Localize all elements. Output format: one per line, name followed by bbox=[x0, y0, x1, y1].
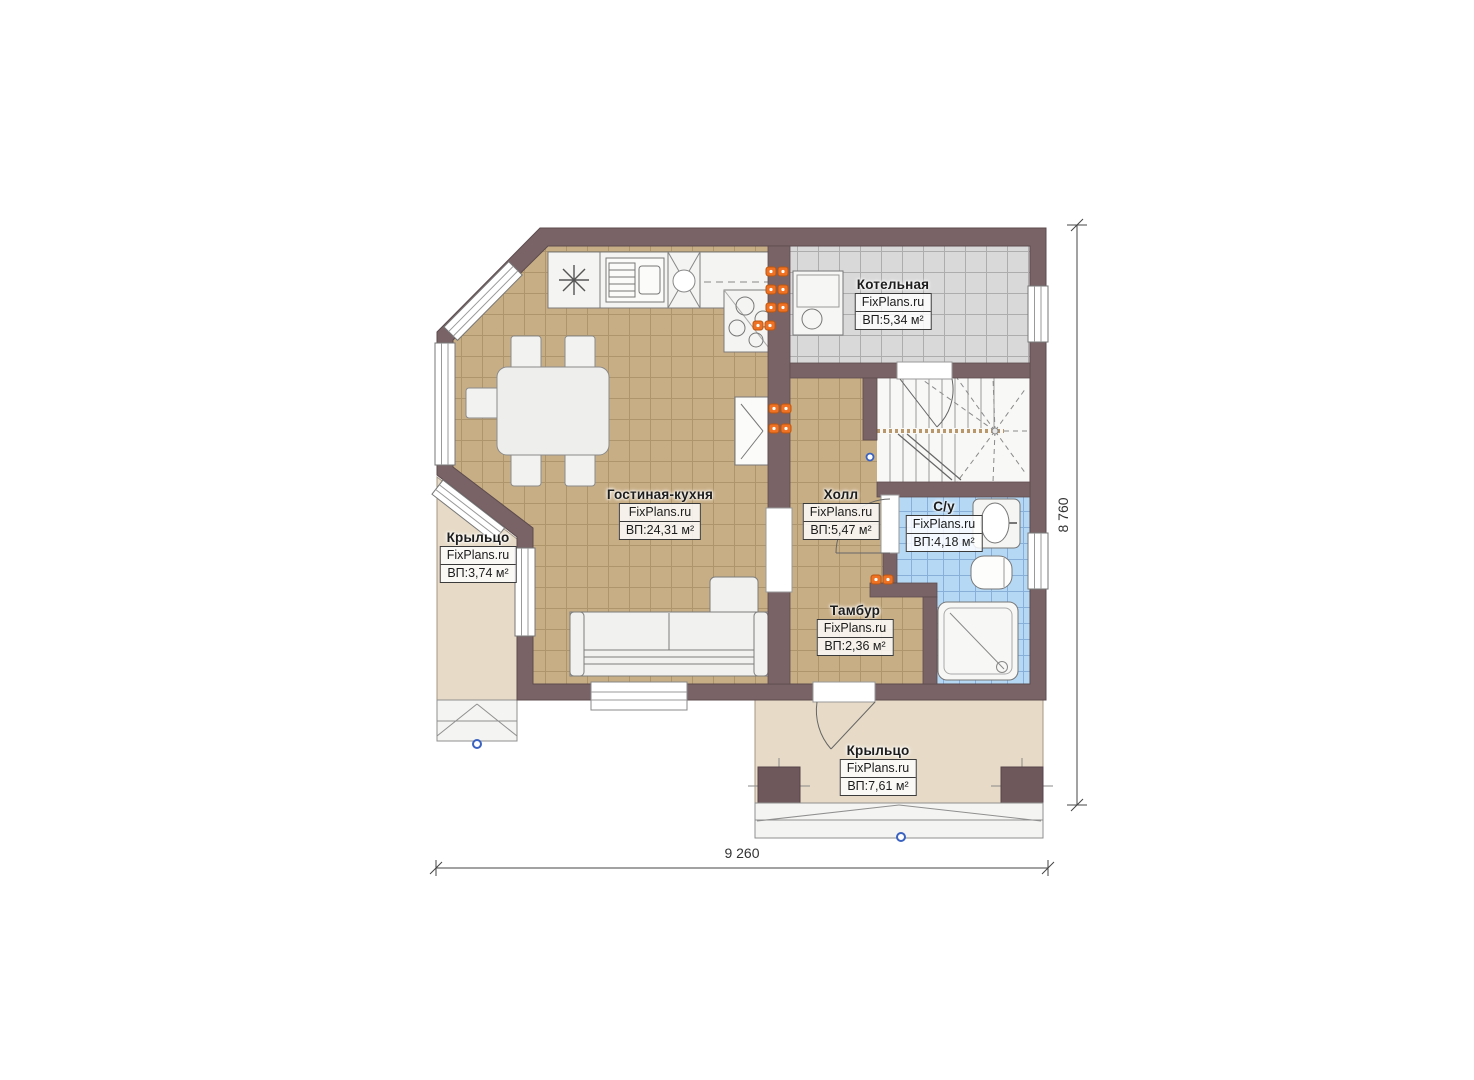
room-plate: FixPlans.ru ВП:4,18 м² bbox=[906, 515, 983, 552]
window-living-south bbox=[591, 682, 687, 710]
room-area: ВП:5,34 м² bbox=[856, 311, 931, 329]
room-label-hall: Холл FixPlans.ru ВП:5,47 м² bbox=[803, 487, 880, 540]
brand-watermark: FixPlans.ru bbox=[441, 547, 516, 564]
room-label-porch-left: Крыльцо FixPlans.ru ВП:3,74 м² bbox=[440, 530, 517, 583]
boiler-unit bbox=[793, 271, 843, 335]
chair bbox=[466, 388, 500, 418]
survey-point-icon bbox=[867, 454, 874, 461]
room-area: ВП:2,36 м² bbox=[818, 637, 893, 655]
room-plate: FixPlans.ru ВП:3,74 м² bbox=[440, 546, 517, 583]
room-area: ВП:5,47 м² bbox=[804, 521, 879, 539]
room-label-vestibule: Тамбур FixPlans.ru ВП:2,36 м² bbox=[817, 603, 894, 656]
dining-table bbox=[497, 367, 609, 455]
room-name: Крыльцо bbox=[440, 530, 517, 545]
chair bbox=[565, 452, 595, 486]
window-left-wall bbox=[515, 548, 535, 636]
room-plate: FixPlans.ru ВП:7,61 м² bbox=[840, 759, 917, 796]
kitchen-sink bbox=[606, 258, 664, 302]
dimension-height-label: 8 760 bbox=[1055, 497, 1071, 532]
room-plate: FixPlans.ru ВП:5,47 м² bbox=[803, 503, 880, 540]
brand-watermark: FixPlans.ru bbox=[856, 294, 931, 311]
room-area: ВП:4,18 м² bbox=[907, 533, 982, 551]
chair bbox=[511, 336, 541, 370]
room-area: ВП:24,31 м² bbox=[620, 521, 700, 539]
room-area: ВП:3,74 м² bbox=[441, 564, 516, 582]
brand-watermark: FixPlans.ru bbox=[841, 760, 916, 777]
chair bbox=[511, 452, 541, 486]
floor-plan-svg: 9 260 8 760 bbox=[0, 0, 1474, 1080]
room-label-bathroom: С/у FixPlans.ru ВП:4,18 м² bbox=[906, 499, 983, 552]
survey-point-icon bbox=[473, 740, 481, 748]
porch-pillar bbox=[1001, 767, 1043, 805]
room-plate: FixPlans.ru ВП:5,34 м² bbox=[855, 293, 932, 330]
room-area: ВП:7,61 м² bbox=[841, 777, 916, 795]
room-label-living-kitchen: Гостиная-кухня FixPlans.ru ВП:24,31 м² bbox=[607, 487, 713, 540]
shower bbox=[938, 602, 1018, 680]
stove bbox=[724, 290, 772, 352]
room-name: Котельная bbox=[855, 277, 932, 292]
survey-point-icon bbox=[897, 833, 905, 841]
brand-watermark: FixPlans.ru bbox=[907, 516, 982, 533]
dimension-width-label: 9 260 bbox=[724, 845, 759, 861]
tv-unit bbox=[735, 397, 768, 465]
bay-window-left bbox=[435, 343, 455, 465]
room-name: Холл bbox=[803, 487, 880, 502]
room-name: Гостиная-кухня bbox=[607, 487, 713, 502]
porch-pillar bbox=[758, 767, 800, 805]
floor-plan-page: 9 260 8 760 Котельная FixPlans.ru ВП:5,3… bbox=[0, 0, 1474, 1080]
window-bathroom bbox=[1028, 533, 1048, 589]
room-plate: FixPlans.ru ВП:24,31 м² bbox=[619, 503, 701, 540]
brand-watermark: FixPlans.ru bbox=[620, 504, 700, 521]
brand-watermark: FixPlans.ru bbox=[804, 504, 879, 521]
opening-living-hall bbox=[766, 508, 792, 592]
toilet bbox=[971, 556, 1012, 589]
brand-watermark: FixPlans.ru bbox=[818, 620, 893, 637]
room-name: Крыльцо bbox=[840, 743, 917, 758]
room-plate: FixPlans.ru ВП:2,36 м² bbox=[817, 619, 894, 656]
chair bbox=[565, 336, 595, 370]
room-label-boiler: Котельная FixPlans.ru ВП:5,34 м² bbox=[855, 277, 932, 330]
cooktop-star-icon bbox=[559, 265, 589, 295]
porch-left-steps bbox=[437, 700, 517, 741]
stairs-floor bbox=[877, 378, 1030, 482]
room-name: Тамбур bbox=[817, 603, 894, 618]
room-name: С/у bbox=[906, 499, 983, 514]
dimension-width bbox=[430, 860, 1054, 876]
window-boiler bbox=[1028, 286, 1048, 342]
room-label-porch-bottom: Крыльцо FixPlans.ru ВП:7,61 м² bbox=[840, 743, 917, 796]
